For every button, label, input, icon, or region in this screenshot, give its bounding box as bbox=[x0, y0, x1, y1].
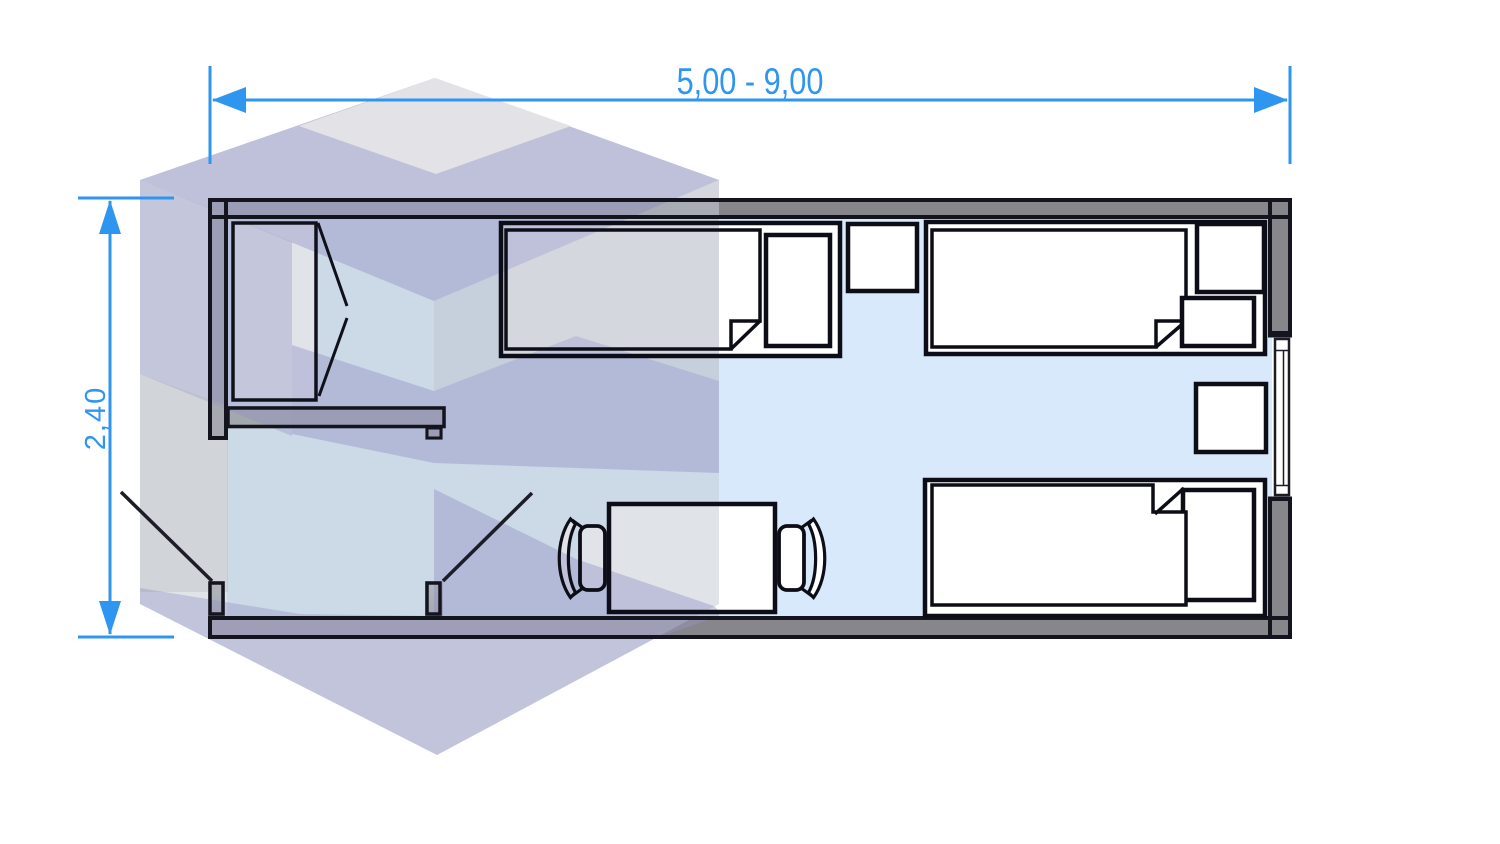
svg-text:5,00 - 9,00: 5,00 - 9,00 bbox=[677, 61, 824, 102]
svg-text:2,40: 2,40 bbox=[80, 386, 112, 450]
